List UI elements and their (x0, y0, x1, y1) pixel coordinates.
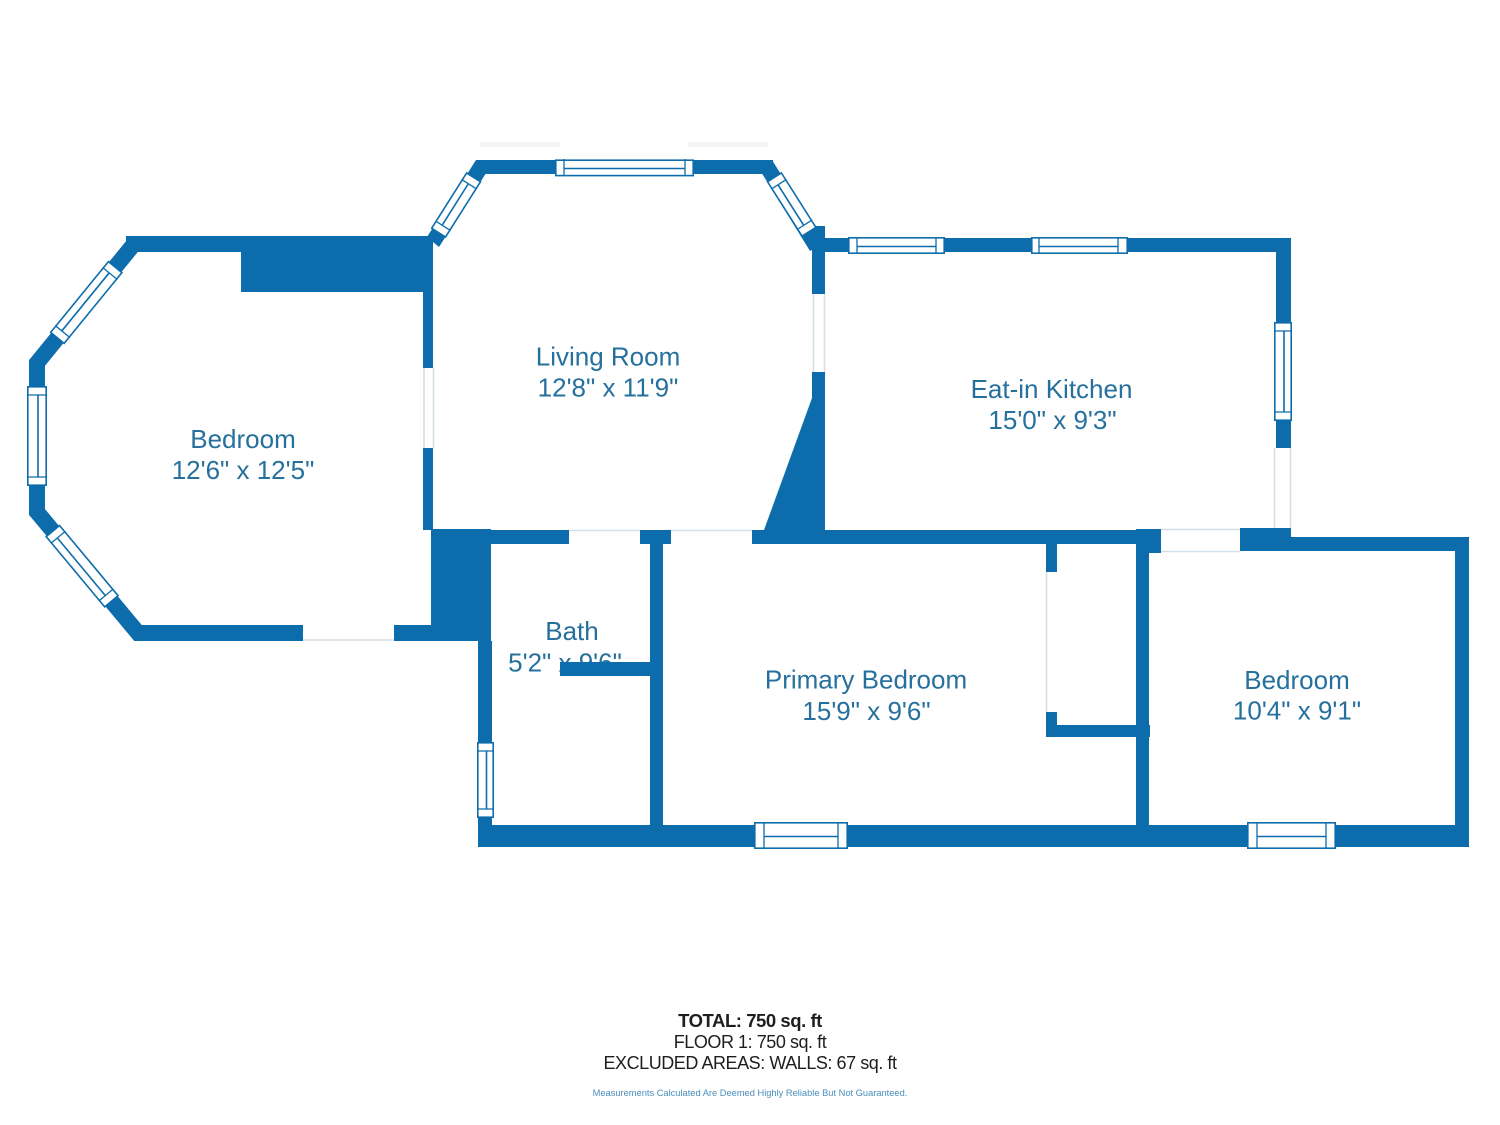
svg-text:Bedroom: Bedroom (190, 424, 296, 454)
svg-text:12'8" x 11'9": 12'8" x 11'9" (538, 373, 679, 403)
svg-text:15'0" x 9'3": 15'0" x 9'3" (988, 405, 1116, 435)
svg-text:Bath: Bath (545, 616, 599, 646)
svg-text:Measurements Calculated Are De: Measurements Calculated Are Deemed Highl… (593, 1088, 908, 1098)
svg-text:10'4" x 9'1": 10'4" x 9'1" (1233, 696, 1361, 726)
svg-text:TOTAL: 750 sq. ft: TOTAL: 750 sq. ft (678, 1010, 822, 1031)
svg-text:Bedroom: Bedroom (1244, 665, 1350, 695)
svg-text:EXCLUDED AREAS: WALLS: 67 sq.: EXCLUDED AREAS: WALLS: 67 sq. ft (603, 1053, 896, 1073)
svg-text:Primary Bedroom: Primary Bedroom (765, 665, 967, 695)
svg-text:12'6" x 12'5": 12'6" x 12'5" (172, 455, 315, 485)
svg-text:15'9" x 9'6": 15'9" x 9'6" (802, 696, 930, 726)
svg-text:FLOOR 1: 750 sq. ft: FLOOR 1: 750 sq. ft (674, 1032, 827, 1052)
svg-text:Living Room: Living Room (536, 342, 681, 372)
svg-text:Eat-in Kitchen: Eat-in Kitchen (971, 374, 1133, 404)
